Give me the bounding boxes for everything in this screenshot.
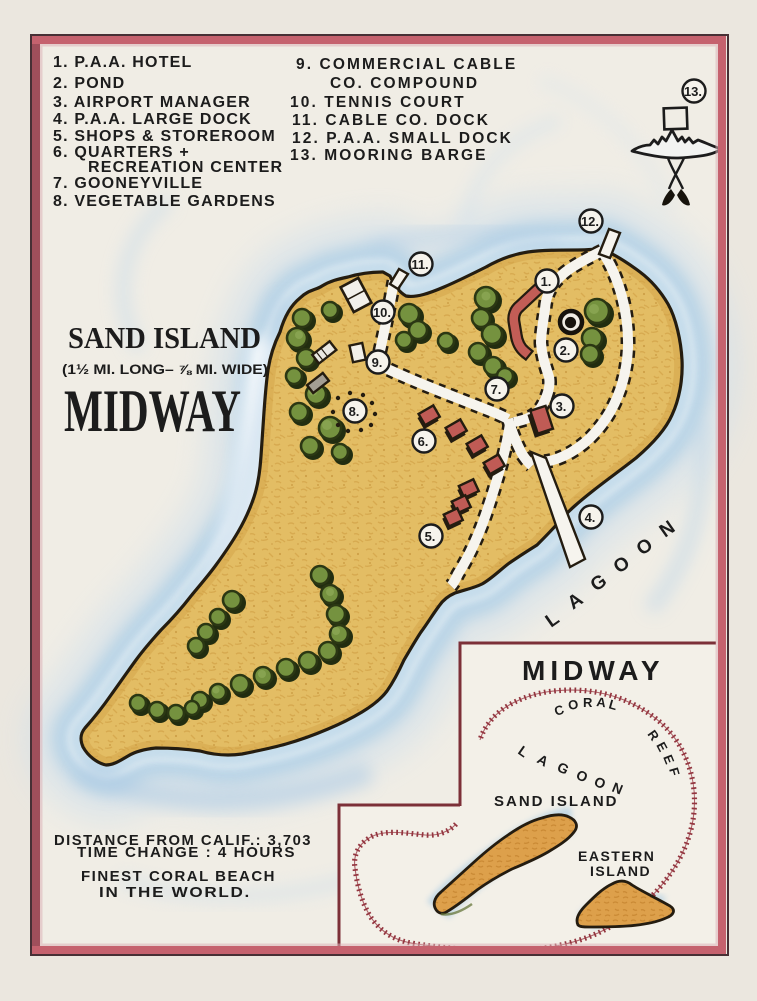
svg-text:MIDWAY: MIDWAY [522,655,665,686]
svg-text:4.: 4. [585,510,596,525]
svg-text:SAND ISLAND: SAND ISLAND [494,793,619,810]
svg-text:RECREATION CENTER: RECREATION CENTER [88,159,283,176]
svg-text:7. GOONEYVILLE: 7. GOONEYVILLE [53,175,203,192]
svg-text:11.: 11. [411,257,428,272]
svg-text:7.: 7. [491,382,502,397]
svg-text:8. VEGETABLE GARDENS: 8. VEGETABLE GARDENS [53,193,276,210]
svg-text:10.: 10. [373,305,391,320]
svg-text:11. CABLE CO. DOCK: 11. CABLE CO. DOCK [292,112,490,129]
svg-text:12.: 12. [581,214,599,229]
svg-text:1.: 1. [541,274,552,289]
svg-text:3. AIRPORT MANAGER: 3. AIRPORT MANAGER [53,94,251,111]
svg-text:5.: 5. [425,529,436,544]
svg-text:2. POND: 2. POND [53,75,125,92]
svg-text:CO. COMPOUND: CO. COMPOUND [330,75,479,92]
svg-text:9. COMMERCIAL CABLE: 9. COMMERCIAL CABLE [296,56,517,73]
svg-text:3.: 3. [556,399,567,414]
svg-text:MIDWAY: MIDWAY [64,378,241,444]
svg-text:10. TENNIS COURT: 10. TENNIS COURT [290,94,466,111]
svg-text:EASTERN: EASTERN [578,848,655,864]
svg-text:IN THE WORLD.: IN THE WORLD. [99,884,251,901]
svg-text:9.: 9. [372,355,383,370]
svg-text:1. P.A.A. HOTEL: 1. P.A.A. HOTEL [53,54,193,71]
svg-text:12. P.A.A. SMALL DOCK: 12. P.A.A. SMALL DOCK [292,130,513,147]
svg-text:(1½ MI. LONG– ⅞ MI. WIDE): (1½ MI. LONG– ⅞ MI. WIDE) [62,361,268,377]
svg-text:TIME CHANGE : 4 HOURS: TIME CHANGE : 4 HOURS [77,844,296,861]
svg-text:8.: 8. [349,404,360,419]
svg-text:R: R [583,695,593,710]
svg-text:6.: 6. [418,434,429,449]
svg-text:5. SHOPS & STOREROOM: 5. SHOPS & STOREROOM [53,128,276,145]
svg-text:13.: 13. [684,84,702,99]
svg-text:FINEST CORAL BEACH: FINEST CORAL BEACH [81,868,276,885]
svg-text:SAND ISLAND: SAND ISLAND [68,320,261,355]
svg-text:4. P.A.A. LARGE DOCK: 4. P.A.A. LARGE DOCK [53,111,252,128]
svg-text:ISLAND: ISLAND [590,863,651,879]
svg-text:13. MOORING BARGE: 13. MOORING BARGE [290,147,488,164]
svg-text:2.: 2. [560,343,571,358]
